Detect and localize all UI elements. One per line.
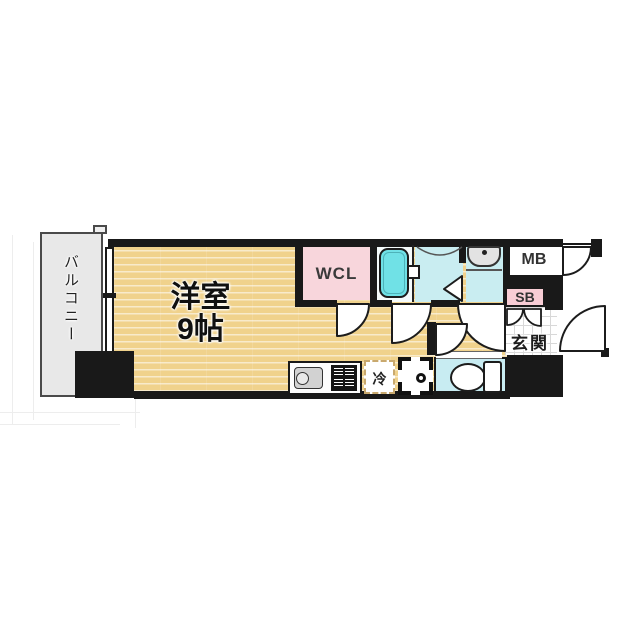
door-swing-overlay [0, 0, 640, 640]
meter-box-label: MB [510, 251, 558, 269]
shoe-box-door-left [507, 309, 523, 325]
main-room-label-line2: 9帖 [148, 314, 253, 346]
main-room-label: 洋室 9帖 [148, 282, 253, 346]
toilet-door-arc [436, 324, 467, 355]
meter-box-door-arc [563, 247, 591, 275]
main-room-label-line1: 洋室 [148, 282, 253, 314]
wcl-label: WCL [303, 264, 370, 284]
balcony-label: バルコニー [60, 254, 81, 344]
wcl-door-arc [337, 304, 369, 336]
shoe-box-label: SB [505, 289, 545, 305]
entrance-label: 玄関 [503, 329, 557, 354]
floor-plan: バルコニー 洋室 9帖 WCL MB SB 玄関 冷 [0, 0, 640, 640]
bath-folding-door [444, 276, 462, 301]
refrigerator-label: 冷 [364, 369, 395, 389]
entrance-door-arc [560, 306, 605, 351]
washroom-door-arc [392, 304, 431, 343]
shoe-box-door-right [524, 309, 541, 326]
washroom-counter-curve [417, 247, 462, 255]
